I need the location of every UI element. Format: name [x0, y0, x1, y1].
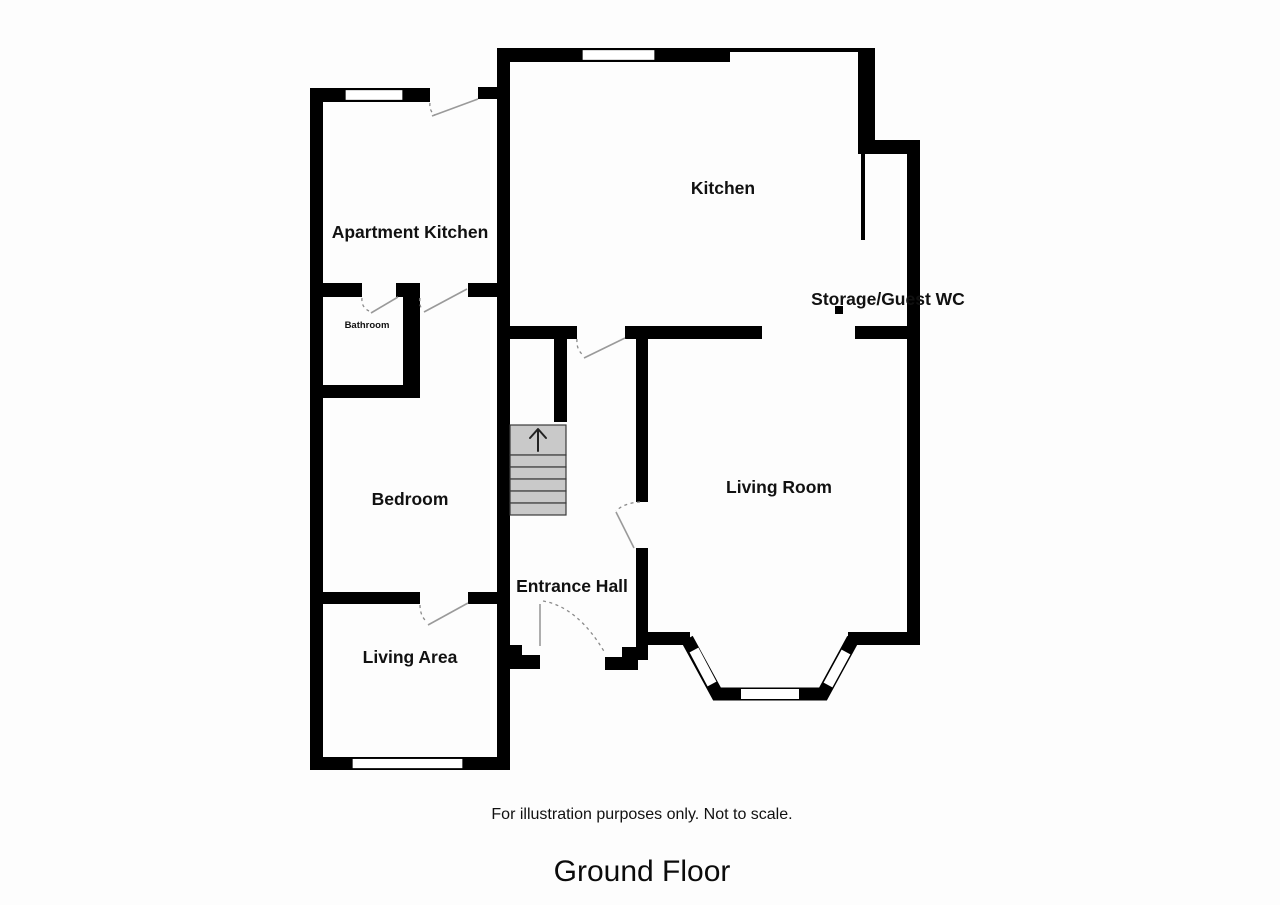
living-room-label: Living Room — [726, 477, 832, 497]
stair-tread — [510, 467, 566, 479]
wall-segment — [858, 48, 875, 147]
bedroom-door-swing — [420, 298, 423, 310]
wall-segment — [310, 385, 420, 398]
living-area-window — [352, 758, 463, 769]
apartment-kitchen-window — [345, 90, 403, 101]
apartment-kitchen-label: Apartment Kitchen — [332, 222, 489, 242]
wall-segment — [310, 592, 420, 604]
bathroom-door-leaf — [371, 297, 398, 313]
wall-segment — [636, 339, 648, 502]
living-room-door-swing — [616, 502, 640, 511]
bedroom-door-leaf — [424, 289, 467, 312]
kitchen-window — [582, 50, 655, 61]
living-area-door-swing — [420, 605, 427, 622]
kitchen-door-swing — [577, 339, 583, 355]
ground-floor-plan: Apartment Kitchen Kitchen Storage/Guest … — [0, 0, 1280, 905]
entrance-hall-label: Entrance Hall — [516, 576, 628, 596]
bathroom-label: Bathroom — [345, 320, 390, 331]
front-door-swing — [543, 601, 605, 653]
disclaimer-text: For illustration purposes only. Not to s… — [491, 806, 792, 823]
living-room-door-leaf — [616, 512, 634, 548]
staircase — [510, 425, 566, 515]
wall-segment — [403, 285, 420, 398]
wall-segment — [497, 48, 510, 770]
wall-segment — [625, 326, 762, 339]
wall-segment — [468, 283, 497, 297]
bedroom-label: Bedroom — [372, 489, 449, 509]
bay-window — [687, 639, 853, 694]
wall-segment — [605, 657, 638, 670]
annotations: For illustration purposes only. Not to s… — [491, 806, 792, 888]
wall-segment — [728, 48, 862, 52]
living-area-label: Living Area — [363, 647, 458, 667]
bathroom-door-swing — [362, 298, 369, 311]
stair-tread — [510, 503, 566, 515]
wall-segment — [310, 283, 362, 297]
wall-segment — [554, 339, 567, 422]
kitchen-door-leaf — [584, 338, 625, 358]
apartment-entrance-door-swing — [430, 103, 435, 115]
wall-segment — [510, 655, 540, 669]
wall-segment — [478, 87, 497, 99]
wall-segment — [861, 154, 865, 240]
wall-segment — [510, 326, 577, 339]
living-area-door-leaf — [428, 603, 468, 625]
wall-segment — [310, 96, 323, 770]
stair-tread — [510, 491, 566, 503]
wall-segment — [855, 326, 920, 339]
floorplan-page: Apartment Kitchen Kitchen Storage/Guest … — [0, 0, 1280, 905]
floor-title: Ground Floor — [554, 855, 731, 888]
wall-segment — [468, 592, 497, 604]
room-labels: Apartment Kitchen Kitchen Storage/Guest … — [332, 178, 965, 667]
kitchen-label: Kitchen — [691, 178, 755, 198]
apartment-entrance-door-leaf — [432, 99, 478, 116]
wall-segment — [848, 632, 920, 645]
stair-tread — [510, 455, 566, 467]
storage-guest-wc-label: Storage/Guest WC — [811, 289, 965, 309]
stair-tread — [510, 479, 566, 491]
wall-segment — [907, 140, 920, 645]
bay-wall-outline — [687, 639, 853, 694]
